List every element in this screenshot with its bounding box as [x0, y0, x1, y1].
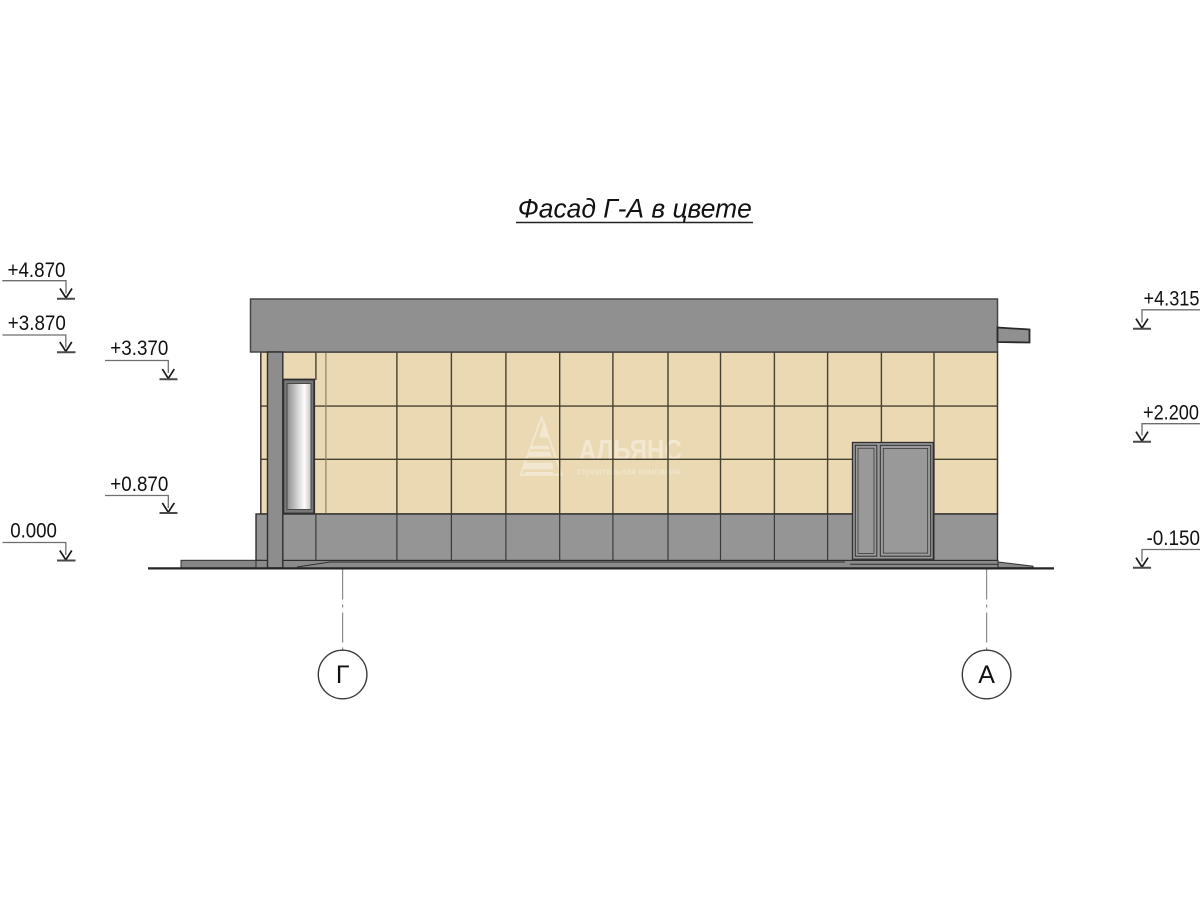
svg-text:-0.150: -0.150 — [1147, 527, 1200, 550]
svg-text:+3.870: +3.870 — [8, 312, 66, 335]
svg-text:+2.200: +2.200 — [1143, 402, 1199, 425]
svg-text:Фасад Г-А в цвете: Фасад Г-А в цвете — [518, 194, 752, 224]
svg-text:+3.370: +3.370 — [110, 337, 168, 360]
svg-text:+4.315: +4.315 — [1144, 288, 1200, 311]
svg-text:+0.870: +0.870 — [110, 473, 168, 496]
svg-text:АЛЬЯНС: АЛЬЯНС — [579, 435, 682, 467]
svg-text:А: А — [978, 661, 995, 689]
svg-text:0.000: 0.000 — [10, 520, 57, 543]
svg-text:Г: Г — [336, 661, 350, 689]
svg-text:строительная компания: строительная компания — [577, 467, 680, 478]
svg-text:+4.870: +4.870 — [8, 259, 66, 282]
